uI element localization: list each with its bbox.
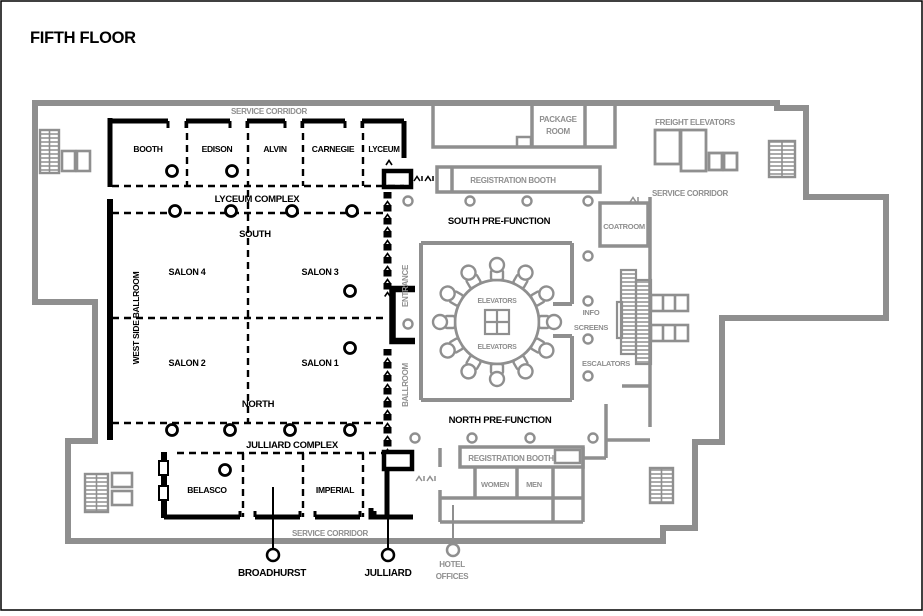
callout-julliard: JULLIARD [364, 568, 411, 579]
ballroom-entrance-label-top: ENTRANCE [401, 264, 410, 307]
julliard-complex-label: JULLIARD COMPLEX [246, 440, 339, 451]
elevators-label-bottom: ELEVATORS [478, 344, 518, 351]
freight-elevators-label: FREIGHT ELEVATORS [655, 118, 736, 127]
escalators-icon [621, 270, 651, 364]
callout-hotel-offices-2: OFFICES [436, 572, 470, 581]
julliard-vestibule [384, 452, 412, 469]
stairs-icon-top-right [769, 141, 795, 177]
service-corridor-right-label: SERVICE CORRIDOR [652, 189, 728, 198]
floor-plan-canvas: FIFTH FLOOR [0, 0, 923, 611]
room-label-women: WOMEN [481, 480, 509, 489]
room-label-carnegie: CARNEGIE [312, 144, 355, 154]
room-label-imperial: IMPERIAL [316, 485, 354, 495]
lyceum-complex-label: LYCEUM COMPLEX [215, 194, 301, 205]
north-prefunction-label: NORTH PRE-FUNCTION [449, 415, 552, 426]
escalators-label: ESCALATORS [582, 359, 630, 368]
west-side-ballroom-label: WEST SIDE BALLROOM [131, 271, 141, 364]
south-prefunction-label: SOUTH PRE-FUNCTION [448, 216, 551, 227]
info-screens-label-1: INFO [583, 308, 600, 317]
room-label-men: MEN [526, 480, 542, 489]
page-title: FIFTH FLOOR [30, 29, 136, 47]
stairs-icon-north-right [650, 468, 673, 503]
service-corridor-bottom-label: SERVICE CORRIDOR [292, 529, 368, 538]
room-label-booth: BOOTH [133, 144, 162, 154]
room-label-salon1: SALON 1 [302, 358, 339, 368]
package-room-label-2: ROOM [546, 127, 570, 136]
room-label-lyceum: LYCEUM [368, 145, 400, 154]
lyceum-vestibule [384, 171, 411, 187]
service-corridor-top-label: SERVICE CORRIDOR [231, 107, 307, 116]
room-label-alvin: ALVIN [263, 144, 287, 154]
stairs-icon-top-left [40, 130, 59, 173]
room-label-salon3: SALON 3 [302, 267, 339, 277]
registration-booth-south-label: REGISTRATION BOOTH [470, 176, 556, 185]
elevators-label-top: ELEVATORS [478, 298, 518, 305]
stairs-icon-bottom-left [85, 474, 108, 512]
room-label-belasco: BELASCO [187, 485, 227, 495]
ballroom-south-label: SOUTH [239, 229, 271, 240]
registration-booth-north-label: REGISTRATION BOOTH [468, 454, 554, 463]
ballroom-entrance-label-bottom: BALLROOM [401, 362, 410, 406]
room-label-edison: EDISON [202, 144, 233, 154]
package-room-label-1: PACKAGE [539, 115, 577, 124]
coatroom-label: COATROOM [603, 222, 645, 231]
ballroom-north-label: NORTH [242, 399, 275, 410]
room-label-salon2: SALON 2 [169, 358, 206, 368]
floor-plan-page: FIFTH FLOOR [0, 0, 923, 611]
info-screens-label-2: SCREENS [574, 323, 608, 332]
callout-hotel-offices-1: HOTEL [439, 560, 465, 569]
room-label-salon4: SALON 4 [169, 267, 206, 277]
callout-broadhurst: BROADHURST [238, 568, 306, 579]
